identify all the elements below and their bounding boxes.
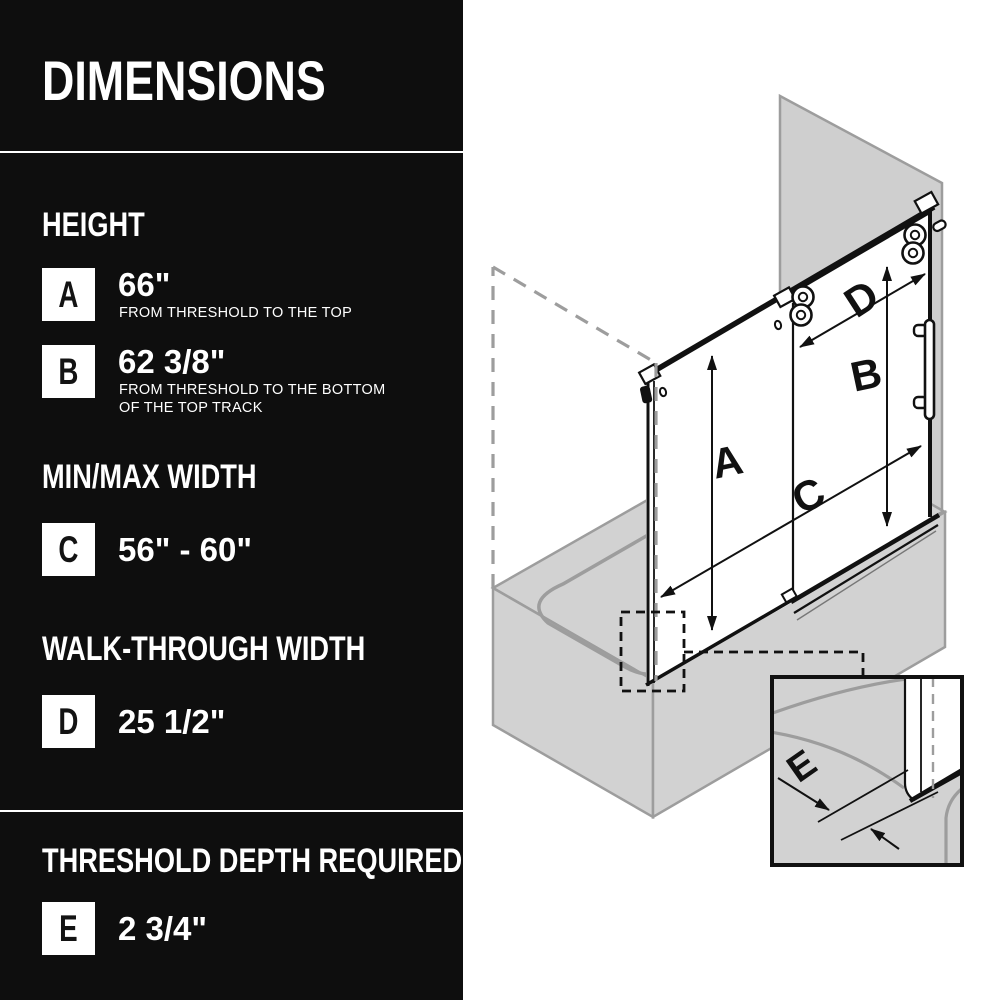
value-e: 2 3/4"	[118, 910, 207, 948]
caption-b-line2: OF THE TOP TRACK	[119, 399, 263, 418]
badge-c: C	[42, 523, 95, 576]
badge-a: A	[42, 268, 95, 321]
value-a: 66"	[118, 266, 170, 304]
dimensions-panel: DIMENSIONS HEIGHT A 66" FROM THRESHOLD T…	[0, 0, 463, 1000]
divider-bottom	[0, 810, 463, 812]
section-heading-height: HEIGHT	[42, 206, 170, 245]
section-heading-walkthrough-width: WALK-THROUGH WIDTH	[42, 630, 446, 669]
page-title: DIMENSIONS	[42, 48, 397, 113]
caption-a: FROM THRESHOLD TO THE TOP	[119, 304, 352, 323]
badge-e: E	[42, 902, 95, 955]
value-b: 62 3/8"	[118, 343, 225, 381]
badge-b: B	[42, 345, 95, 398]
badge-d: D	[42, 695, 95, 748]
threshold-inset: E	[770, 675, 964, 867]
caption-b-line1: FROM THRESHOLD TO THE BOTTOM	[119, 381, 385, 400]
tub-door-diagram: A B C D E	[470, 0, 1000, 1000]
value-c: 56" - 60"	[118, 531, 252, 569]
value-d: 25 1/2"	[118, 703, 225, 741]
section-heading-minmax-width: MIN/MAX WIDTH	[42, 458, 310, 497]
divider-top	[0, 151, 463, 153]
